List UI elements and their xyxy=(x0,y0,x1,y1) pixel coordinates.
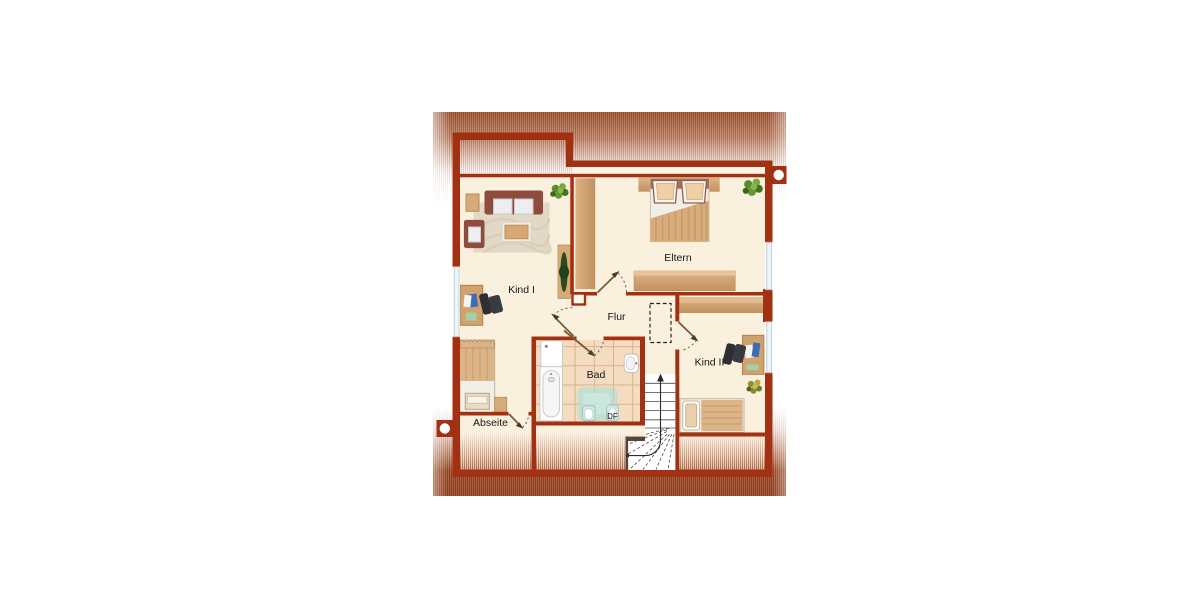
svg-text:Kind II: Kind II xyxy=(695,357,725,369)
svg-text:Abseite: Abseite xyxy=(473,417,508,429)
svg-text:Kind I: Kind I xyxy=(508,284,535,296)
svg-text:Eltern: Eltern xyxy=(664,252,692,264)
svg-text:Bad: Bad xyxy=(587,369,606,381)
svg-text:Flur: Flur xyxy=(607,311,626,323)
svg-text:DF: DF xyxy=(607,412,618,421)
